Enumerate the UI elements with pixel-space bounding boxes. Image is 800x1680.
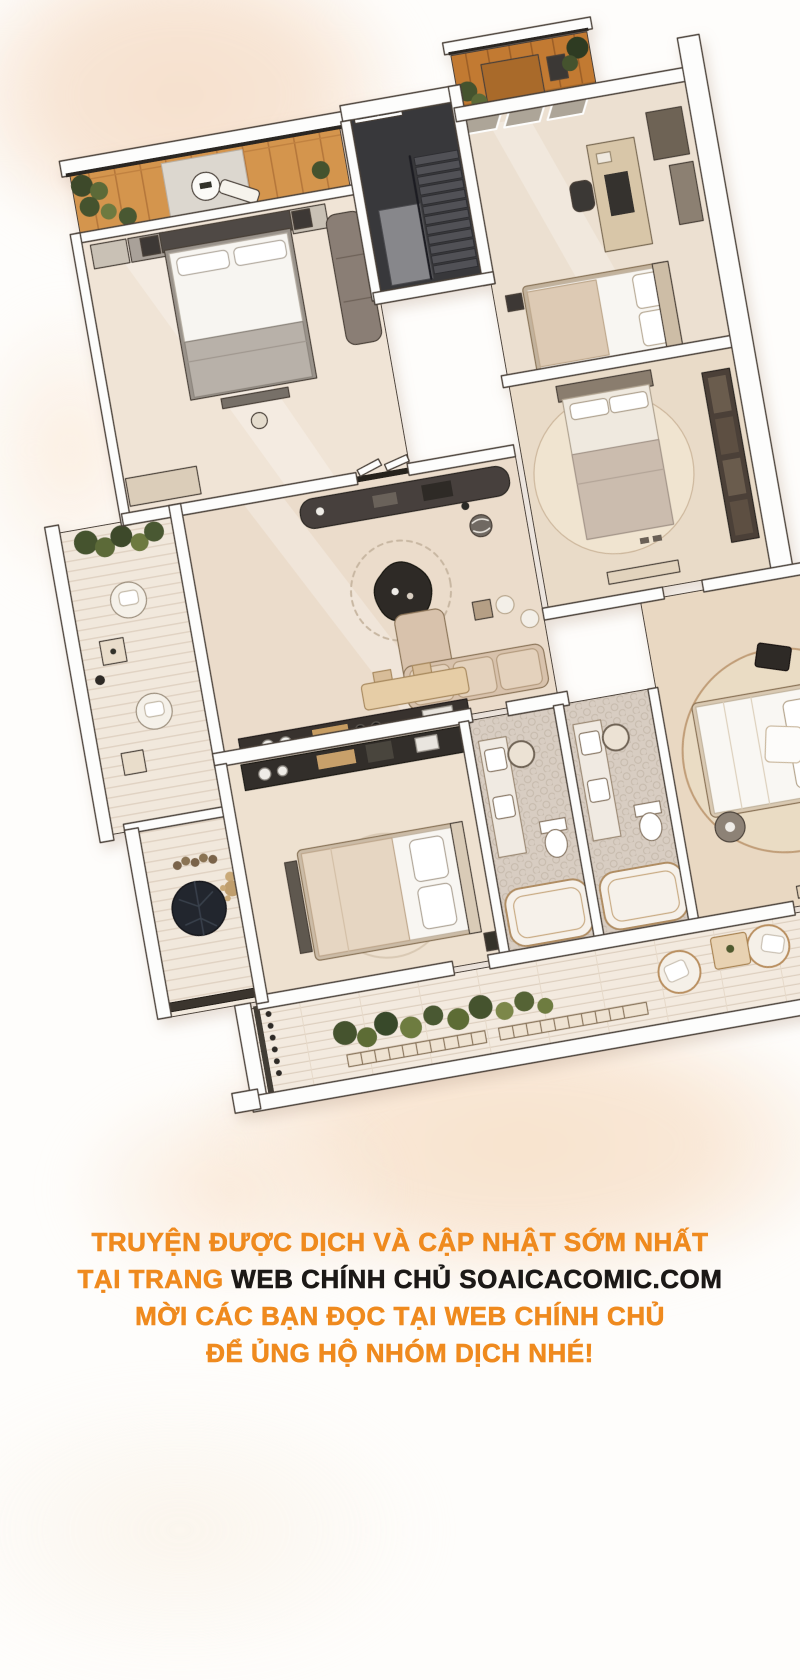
credit-line-4: ĐỂ ỦNG HỘ NHÓM DỊCH NHÉ! [0,1335,800,1372]
laptop [755,643,792,671]
credit-line-2: TẠI TRANG WEB CHÍNH CHỦ SOAICACOMIC.COM [0,1261,800,1298]
floorplan-illustration [0,0,800,1190]
credit-line-2-prefix: TẠI TRANG [78,1264,232,1294]
comic-page: { "footer": { "line1": "TRUYỆN ĐƯỢC DỊCH… [0,0,800,1670]
terrace-table [710,932,751,970]
nightstand [505,293,524,312]
credit-line-3: MỜI CÁC BẠN ĐỌC TẠI WEB CHÍNH CHỦ [0,1298,800,1335]
credit-line-1: TRUYỆN ĐƯỢC DỊCH VÀ CẬP NHẬT SỚM NHẤT [0,1224,800,1261]
desk-chair [569,179,596,212]
side-table [121,750,146,775]
cabinet [646,107,690,161]
nightstand [140,235,161,256]
nightstand [292,209,313,230]
watercolor-wash-tail [0,1380,440,1680]
credit-line-2-site: WEB CHÍNH CHỦ SOAICACOMIC.COM [231,1264,722,1294]
side-table [472,599,493,620]
translator-credit-note: TRUYỆN ĐƯỢC DỊCH VÀ CẬP NHẬT SỚM NHẤT TẠ… [0,1224,800,1372]
